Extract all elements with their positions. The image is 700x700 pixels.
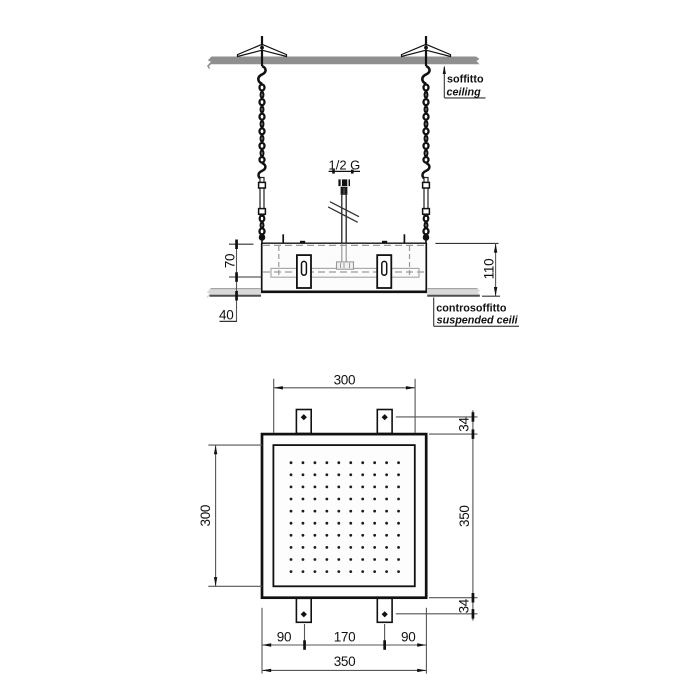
svg-text:suspended ceili: suspended ceili xyxy=(437,315,519,327)
svg-text:90: 90 xyxy=(277,630,291,645)
svg-text:350: 350 xyxy=(334,654,356,669)
svg-text:soffitto: soffitto xyxy=(447,74,484,86)
svg-text:90: 90 xyxy=(401,630,415,645)
svg-text:300: 300 xyxy=(334,372,356,387)
svg-text:110: 110 xyxy=(482,259,497,280)
svg-text:350: 350 xyxy=(457,505,472,527)
svg-text:ceiling: ceiling xyxy=(447,87,482,99)
svg-text:34: 34 xyxy=(456,417,471,432)
svg-text:170: 170 xyxy=(334,630,356,645)
svg-text:34: 34 xyxy=(456,598,471,613)
svg-text:300: 300 xyxy=(198,505,213,527)
svg-text:controsoffitto: controsoffitto xyxy=(436,303,507,315)
svg-text:70: 70 xyxy=(223,254,238,268)
svg-text:40: 40 xyxy=(219,308,233,323)
